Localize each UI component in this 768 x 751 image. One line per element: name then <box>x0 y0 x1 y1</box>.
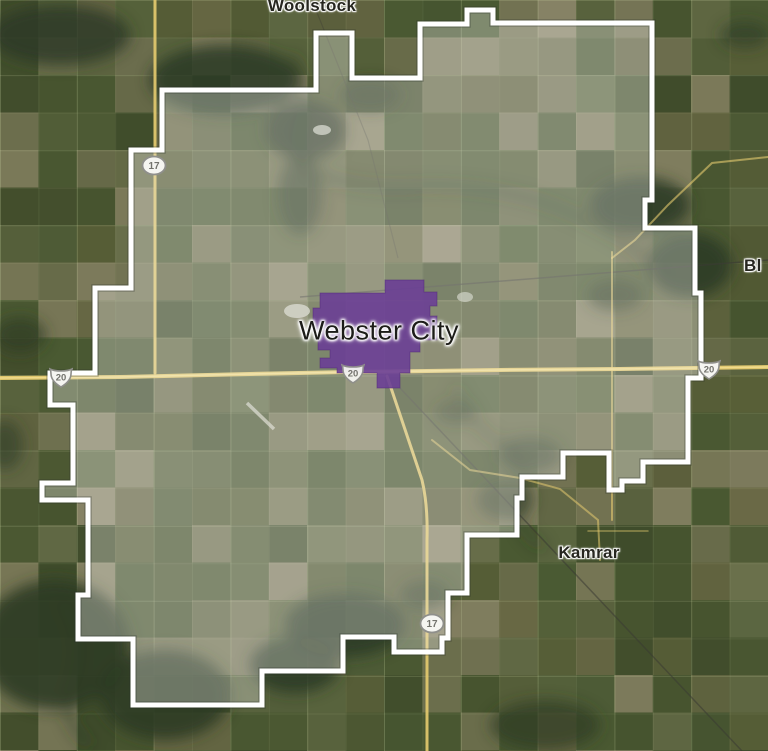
route-shield-us20-east: 20 <box>697 358 721 380</box>
route-shield-us20-west-number: 20 <box>56 373 67 384</box>
route-shield-ia17-south: 17 <box>419 613 445 634</box>
route-shield-us20-west: 20 <box>49 366 73 388</box>
route-shield-ia17-south-number: 17 <box>426 619 438 630</box>
route-shield-us20-city-number: 20 <box>348 369 359 380</box>
satellite-map-layer <box>0 0 768 751</box>
town-label-woolstock[interactable]: Woolstock <box>268 0 356 16</box>
city-label-webster-city[interactable]: Webster City <box>299 316 459 347</box>
route-shield-ia17-north-number: 17 <box>148 161 160 172</box>
route-shield-us20-city: 20 <box>341 362 365 384</box>
route-shield-ia17-north: 17 <box>141 155 167 176</box>
map-canvas[interactable]: Woolstock Webster City Kamrar Bl 17 17 2… <box>0 0 768 751</box>
town-label-kamrar[interactable]: Kamrar <box>558 543 619 563</box>
town-label-east-partial[interactable]: Bl <box>744 256 762 276</box>
route-shield-us20-east-number: 20 <box>704 365 715 376</box>
